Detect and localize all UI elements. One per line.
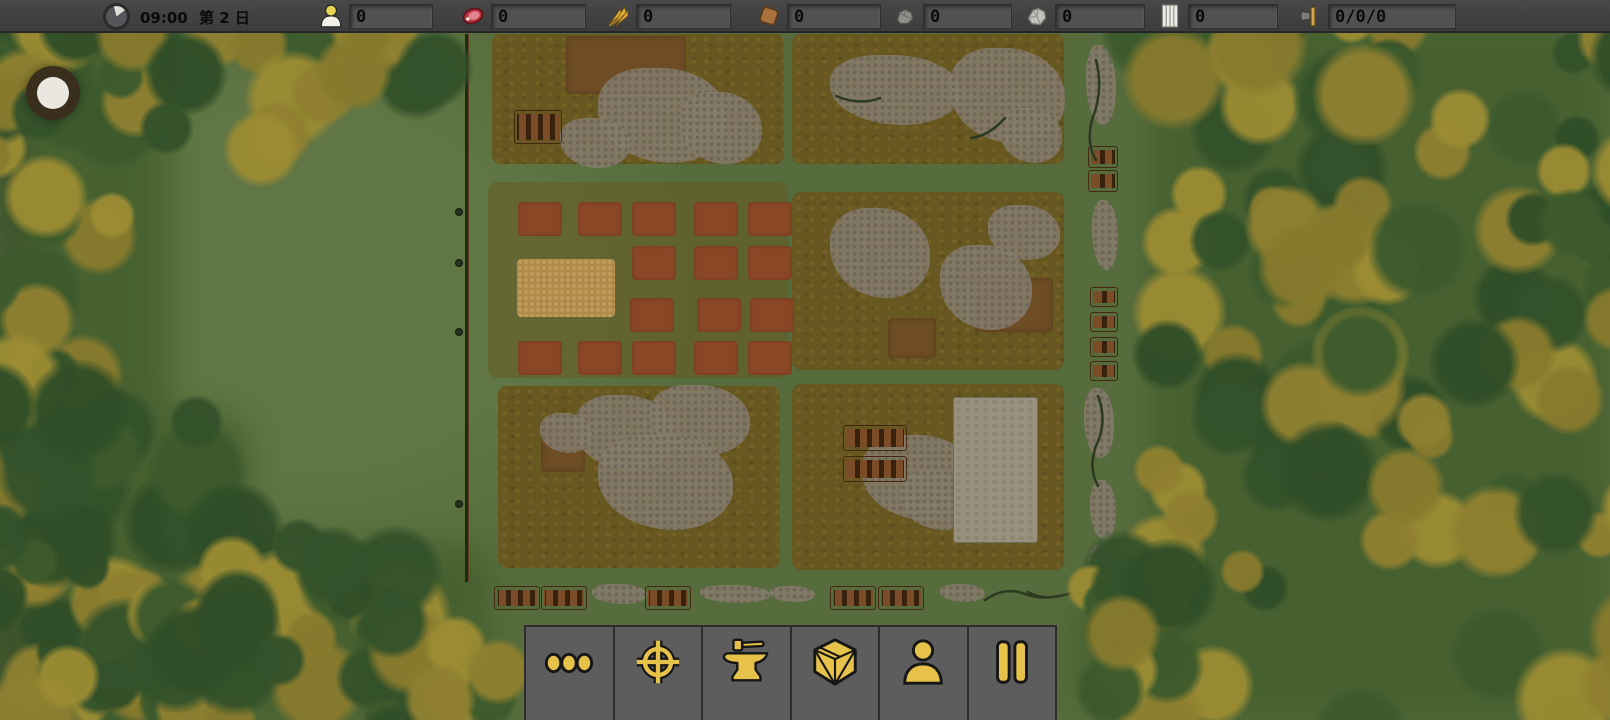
resource-value: 0 xyxy=(491,4,586,29)
crate-icon xyxy=(808,635,862,689)
resource-wood: 0 xyxy=(756,3,881,29)
time-label: 09:00 xyxy=(140,9,188,27)
more-button[interactable] xyxy=(526,627,613,720)
farm-plot xyxy=(630,298,674,332)
tree-shade xyxy=(140,545,490,720)
farm-plot xyxy=(578,341,622,375)
storage-crate xyxy=(1090,337,1118,357)
resource-value: 0/0/0 xyxy=(1328,4,1456,29)
meat-icon xyxy=(460,3,486,29)
clock-icon xyxy=(103,3,130,30)
fence-post xyxy=(455,259,463,267)
iron-icon xyxy=(1024,3,1050,29)
resource-planks: 0 xyxy=(1157,3,1278,29)
tree-canopy xyxy=(244,100,312,168)
resource-value: 0 xyxy=(636,4,731,29)
stone-icon xyxy=(892,3,918,29)
game-screen: 09:00 第 2 日 0 0 0 0 0 0 0 xyxy=(0,0,1610,720)
wheat-icon xyxy=(605,3,631,29)
rubble-debris xyxy=(1086,45,1116,125)
tree-shade xyxy=(0,20,16,720)
anvil-icon xyxy=(719,635,773,689)
date-label: 第 2 日 xyxy=(199,9,250,27)
craft-button[interactable] xyxy=(703,627,790,720)
tree-canopy xyxy=(290,60,356,126)
farm-plot xyxy=(694,341,738,375)
farm-plot xyxy=(518,341,562,375)
tree-canopy xyxy=(223,111,299,187)
resource-value: 0 xyxy=(1188,4,1278,29)
rubble-debris xyxy=(592,584,647,604)
rubble-debris xyxy=(700,585,770,603)
storage-crate xyxy=(645,586,691,610)
rubble-debris xyxy=(940,584,985,602)
resource-topbar: 09:00 第 2 日 0 0 0 0 0 0 0 xyxy=(0,0,1610,33)
tree-canopy xyxy=(315,34,392,111)
farm-plot xyxy=(694,202,738,236)
time-and-date: 09:00 第 2 日 xyxy=(140,7,250,28)
resource-value: 0 xyxy=(923,4,1012,29)
storage-crate xyxy=(878,586,924,610)
fence-post xyxy=(455,208,463,216)
farm-plot xyxy=(518,202,562,236)
storage-crate xyxy=(1088,170,1118,192)
wheat-field xyxy=(517,259,615,317)
resource-wheat: 0 xyxy=(605,3,731,29)
villagers-button[interactable] xyxy=(880,627,967,720)
resource-tools: 0/0/0 xyxy=(1297,3,1456,29)
game-map[interactable] xyxy=(0,0,1610,720)
farm-plot xyxy=(632,246,676,280)
farm-plot xyxy=(750,298,794,332)
farm-plot xyxy=(632,341,676,375)
farm-plot xyxy=(748,246,792,280)
tree-shade xyxy=(1075,590,1225,720)
storage-button[interactable] xyxy=(792,627,879,720)
storage-crate xyxy=(843,456,907,482)
soil-patch xyxy=(888,318,936,358)
farm-plot xyxy=(632,202,676,236)
storage-crate xyxy=(514,110,562,144)
rubble-debris xyxy=(1092,200,1118,270)
target-icon xyxy=(631,635,685,689)
target-button[interactable] xyxy=(615,627,702,720)
pause-button[interactable] xyxy=(969,627,1056,720)
rubble-debris xyxy=(1088,545,1114,595)
resource-villagers: 0 xyxy=(318,3,433,29)
tree-canopy xyxy=(374,36,458,120)
person-icon xyxy=(318,3,344,29)
action-toolbar xyxy=(524,625,1057,720)
wood-icon xyxy=(756,3,782,29)
farm-plot xyxy=(694,246,738,280)
fence-post xyxy=(455,328,463,336)
farm-plot xyxy=(697,298,741,332)
well-icon-center xyxy=(37,77,69,109)
rubble-debris xyxy=(770,586,815,602)
tree-canopy xyxy=(245,50,342,147)
resource-iron: 0 xyxy=(1024,3,1145,29)
resource-value: 0 xyxy=(349,4,433,29)
rubble-debris xyxy=(1084,388,1114,458)
more-icon xyxy=(542,635,596,689)
resource-value: 0 xyxy=(787,4,881,29)
fence-post xyxy=(455,500,463,508)
planks-icon xyxy=(1157,3,1183,29)
resource-stone: 0 xyxy=(892,3,1012,29)
pause-icon xyxy=(985,635,1039,689)
tree-canopy xyxy=(396,29,474,107)
farm-plot xyxy=(578,202,622,236)
resource-value: 0 xyxy=(1055,4,1145,29)
storage-crate xyxy=(843,425,907,451)
rubble-debris xyxy=(1090,480,1116,540)
storage-crate xyxy=(1090,361,1118,381)
storage-crate xyxy=(1088,146,1118,168)
storage-crate xyxy=(494,586,540,610)
storage-crate xyxy=(1090,312,1118,332)
fence-line xyxy=(465,34,469,582)
person-icon xyxy=(896,635,950,689)
storage-crate xyxy=(541,586,587,610)
farm-plot xyxy=(748,202,792,236)
resource-meat: 0 xyxy=(460,3,586,29)
storage-crate xyxy=(1090,287,1118,307)
farm-plot xyxy=(748,341,792,375)
storage-crate xyxy=(830,586,876,610)
stone-building xyxy=(953,397,1038,543)
tools-icon xyxy=(1297,3,1323,29)
